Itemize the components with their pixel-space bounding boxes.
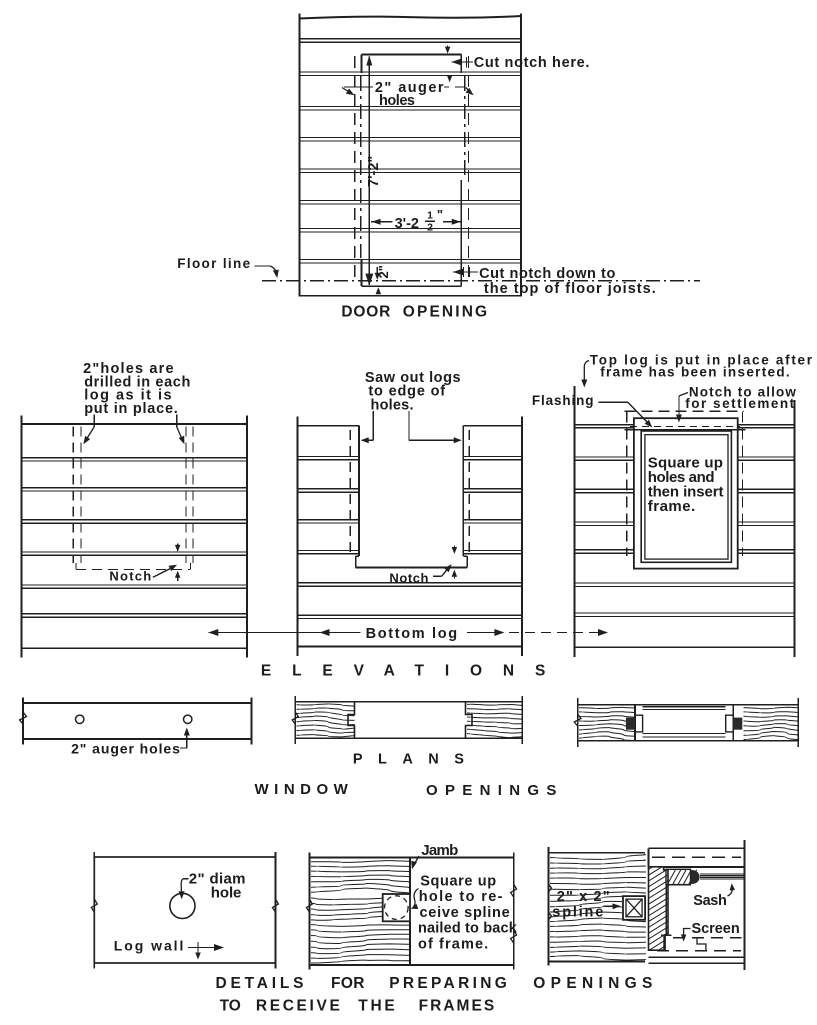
svg-text:put in place.: put in place. bbox=[84, 401, 178, 417]
svg-text:Notch: Notch bbox=[389, 570, 428, 585]
svg-text:for settlement: for settlement bbox=[685, 396, 794, 411]
svg-text:frame has been inserted.: frame has been inserted. bbox=[600, 364, 790, 379]
svg-text:": " bbox=[437, 207, 443, 222]
svg-text:spline: spline bbox=[552, 904, 603, 920]
svg-text:ceive spline: ceive spline bbox=[420, 905, 510, 921]
svg-text:2": 2" bbox=[376, 265, 391, 278]
svg-text:WINDOW: WINDOW bbox=[255, 781, 349, 798]
svg-text:of frame.: of frame. bbox=[418, 936, 488, 952]
svg-text:Cut notch down to: Cut notch down to bbox=[479, 266, 615, 282]
svg-text:frame.: frame. bbox=[648, 498, 696, 515]
svg-text:7'-2": 7'-2" bbox=[366, 156, 382, 187]
svg-text:nailed to back: nailed to back bbox=[418, 921, 518, 937]
svg-text:THE: THE bbox=[358, 997, 394, 1014]
svg-text:holes: holes bbox=[379, 93, 415, 109]
svg-text:hole to re-: hole to re- bbox=[419, 889, 503, 905]
svg-text:holes.: holes. bbox=[371, 398, 414, 414]
svg-text:Cut notch here.: Cut notch here. bbox=[474, 55, 590, 71]
svg-text:Notch: Notch bbox=[109, 569, 151, 584]
svg-text:FOR: FOR bbox=[331, 975, 365, 992]
svg-text:OPENINGS: OPENINGS bbox=[533, 975, 652, 992]
svg-text:the top of floor joists.: the top of floor joists. bbox=[484, 281, 656, 297]
svg-text:2" auger holes: 2" auger holes bbox=[71, 741, 180, 757]
svg-text:FRAMES: FRAMES bbox=[419, 997, 495, 1014]
svg-text:TO: TO bbox=[220, 997, 241, 1014]
svg-text:1: 1 bbox=[427, 210, 433, 222]
svg-text:Floor line: Floor line bbox=[177, 256, 250, 271]
svg-text:2: 2 bbox=[427, 222, 433, 234]
svg-text:DOOR: DOOR bbox=[341, 304, 390, 321]
svg-text:hole: hole bbox=[211, 884, 242, 901]
svg-text:Log wall: Log wall bbox=[114, 938, 184, 954]
svg-text:3'-2: 3'-2 bbox=[395, 216, 419, 232]
svg-text:PREPARING: PREPARING bbox=[389, 975, 507, 992]
svg-text:Bottom log: Bottom log bbox=[366, 626, 458, 642]
svg-text:Jamb: Jamb bbox=[421, 842, 458, 859]
svg-text:Screen: Screen bbox=[692, 921, 740, 937]
svg-text:Sash: Sash bbox=[693, 893, 727, 909]
svg-text:Square up: Square up bbox=[420, 873, 496, 889]
svg-text:Flashing: Flashing bbox=[532, 393, 594, 408]
